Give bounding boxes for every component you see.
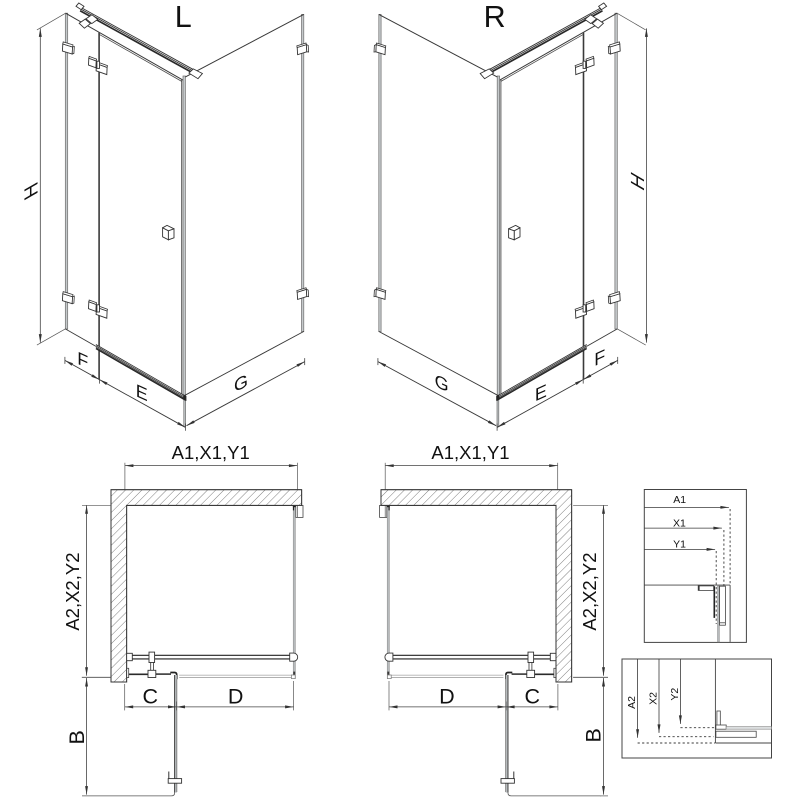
svg-text:B: B: [65, 730, 89, 744]
svg-text:A2,X2,Y2: A2,X2,Y2: [579, 553, 600, 631]
svg-text:A1,X1,Y1: A1,X1,Y1: [431, 442, 509, 463]
svg-text:R: R: [484, 0, 506, 34]
svg-text:X2: X2: [648, 692, 660, 705]
svg-text:A1: A1: [673, 494, 686, 506]
svg-text:X1: X1: [673, 517, 686, 529]
svg-text:D: D: [439, 684, 455, 708]
svg-text:Y2: Y2: [669, 688, 681, 701]
svg-text:D: D: [228, 684, 244, 708]
svg-text:A2: A2: [626, 696, 638, 709]
svg-text:A2,X2,Y2: A2,X2,Y2: [62, 553, 83, 631]
svg-text:L: L: [175, 0, 192, 34]
svg-text:B: B: [581, 728, 605, 742]
svg-text:A1,X1,Y1: A1,X1,Y1: [172, 442, 250, 463]
svg-text:C: C: [143, 684, 159, 708]
svg-text:C: C: [525, 684, 541, 708]
svg-text:Y1: Y1: [673, 539, 686, 551]
